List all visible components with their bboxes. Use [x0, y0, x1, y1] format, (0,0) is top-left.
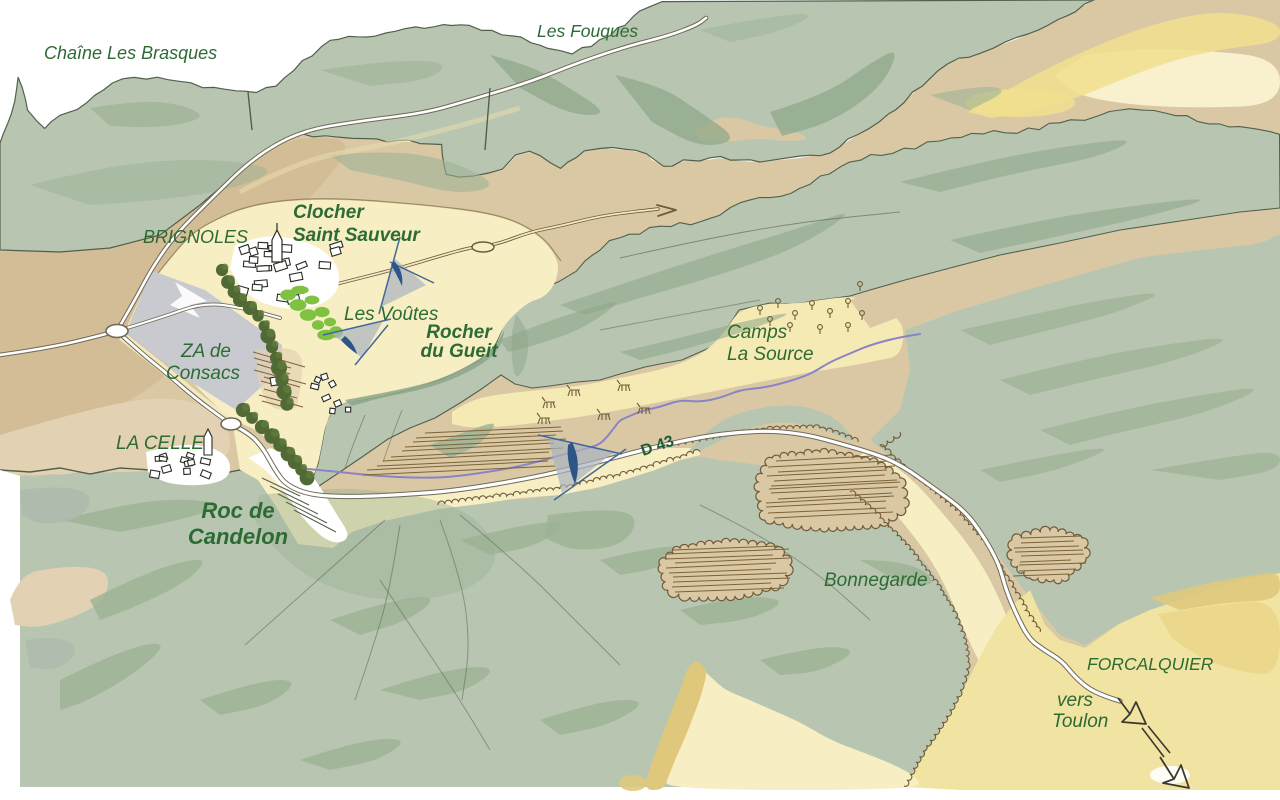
- svg-text:FORCALQUIER: FORCALQUIER: [1087, 654, 1214, 674]
- svg-text:BRIGNOLES: BRIGNOLES: [143, 227, 248, 247]
- svg-text:Camps: Camps: [727, 322, 788, 343]
- svg-text:Candelon: Candelon: [188, 524, 288, 549]
- svg-text:Toulon: Toulon: [1052, 711, 1108, 732]
- svg-text:ZA de: ZA de: [180, 341, 231, 362]
- svg-text:Consacs: Consacs: [166, 363, 240, 384]
- svg-text:Rocher: Rocher: [426, 322, 493, 343]
- svg-text:Bonnegarde: Bonnegarde: [824, 570, 928, 591]
- svg-text:vers: vers: [1057, 690, 1093, 711]
- svg-text:Les Fouques: Les Fouques: [537, 21, 638, 41]
- svg-text:Les Voûtes: Les Voûtes: [344, 304, 439, 325]
- svg-text:Clocher: Clocher: [293, 202, 365, 223]
- svg-text:Saint Sauveur: Saint Sauveur: [293, 225, 421, 246]
- svg-text:La Source: La Source: [727, 344, 814, 365]
- svg-text:LA CELLE: LA CELLE: [116, 433, 204, 454]
- svg-text:Roc de: Roc de: [201, 498, 274, 523]
- svg-text:du Gueit: du Gueit: [420, 341, 498, 362]
- svg-text:Chaîne Les Brasques: Chaîne Les Brasques: [44, 43, 217, 63]
